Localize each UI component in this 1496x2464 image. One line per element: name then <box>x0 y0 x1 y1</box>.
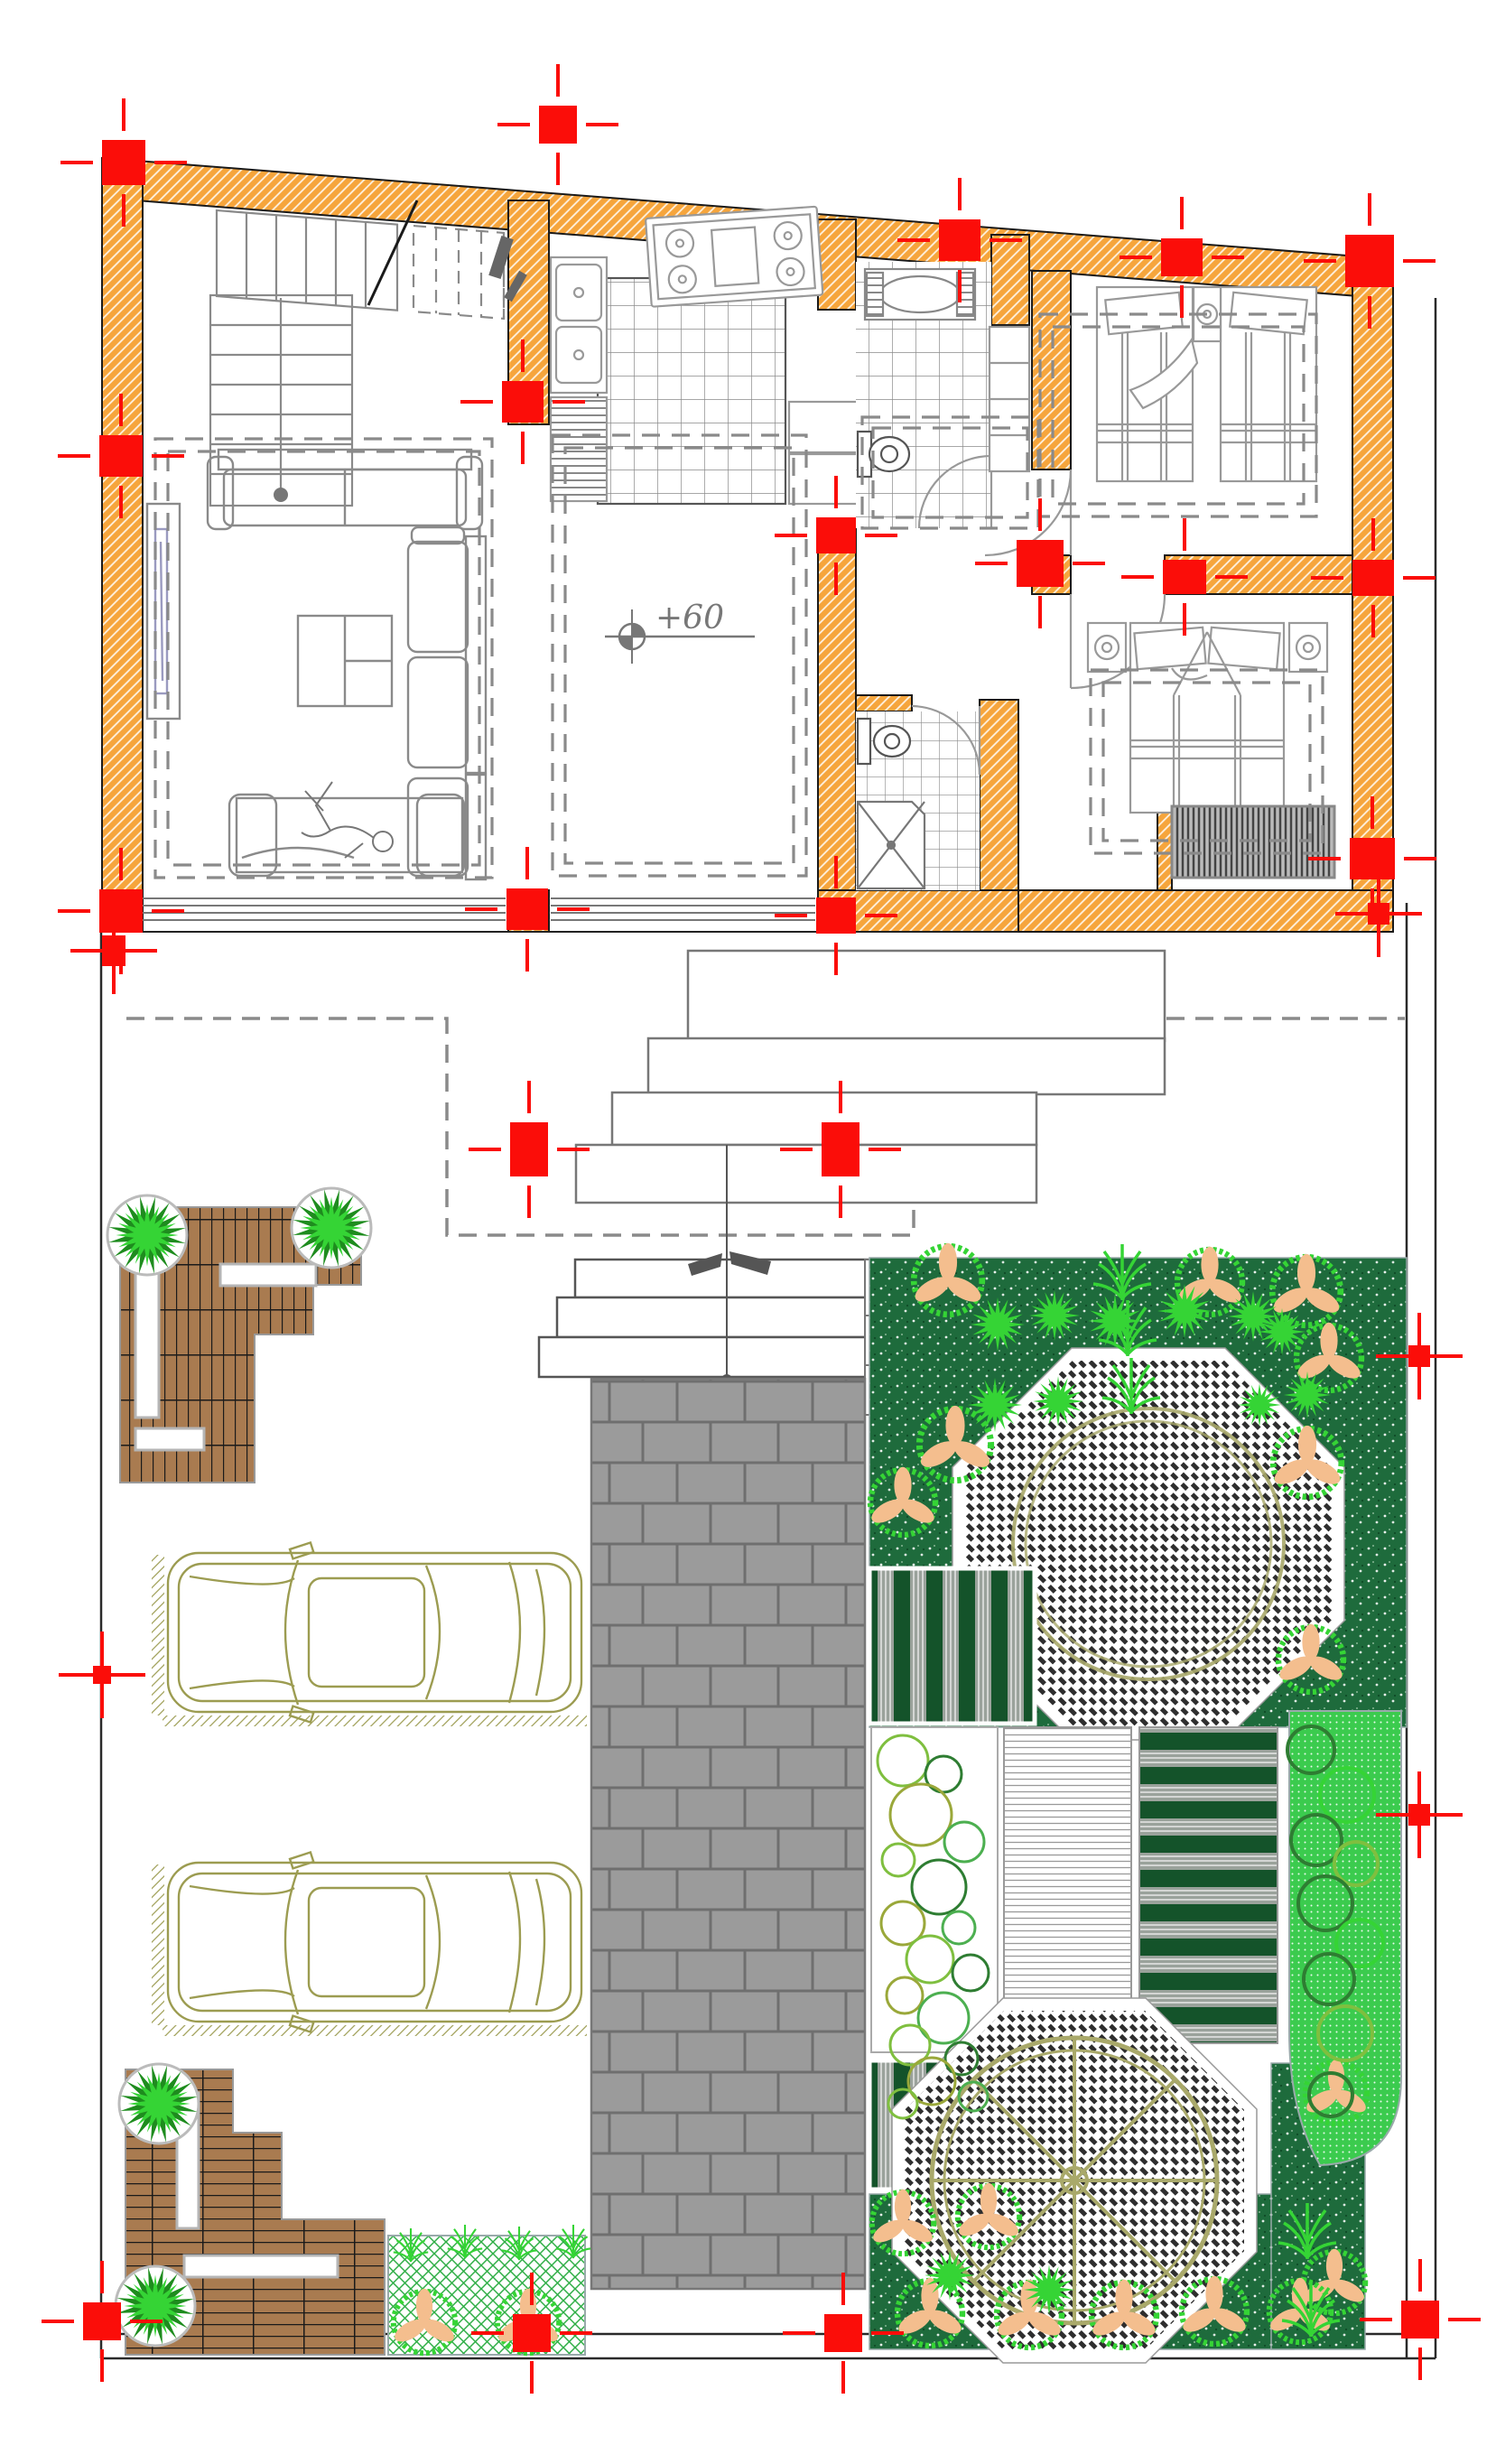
star-shrub-icon <box>1284 1371 1331 1418</box>
star-shrub-icon <box>925 2250 975 2301</box>
bedroom-2 <box>1071 594 1334 878</box>
structural-column <box>60 98 187 227</box>
structural-column <box>1304 193 1436 329</box>
cad-sheet: +60 <box>0 0 1496 2464</box>
entry-platform <box>576 951 1165 1203</box>
star-shrub-icon <box>1033 1376 1083 1427</box>
structural-column <box>1311 518 1436 637</box>
star-shrub-icon <box>971 1297 1025 1352</box>
living-room <box>147 450 486 879</box>
ac-stub-wall <box>1157 806 1172 890</box>
level-marker: +60 <box>605 600 755 664</box>
parking-area <box>152 1543 587 2036</box>
shower-right-wall <box>980 700 1018 905</box>
tv-unit <box>147 504 180 719</box>
striped-bed-a <box>869 1568 1035 1724</box>
structural-column <box>1360 2259 1481 2380</box>
grid-cross-marker <box>59 1632 145 1718</box>
zebra-bed <box>1139 1727 1278 2043</box>
shower-room <box>856 706 980 890</box>
bathroom-top <box>856 262 991 528</box>
coffee-table <box>298 616 392 706</box>
double-bed <box>1130 623 1284 813</box>
star-shrub-icon <box>1157 1284 1212 1338</box>
counter-tiles <box>598 278 785 504</box>
grid-cross-marker <box>1335 870 1422 957</box>
stove-icon <box>646 207 822 307</box>
bath-closet-wall <box>991 235 1029 325</box>
sink-icon <box>551 257 607 501</box>
site-plan-drawing: +60 <box>0 0 1496 2464</box>
shower-top-stub <box>856 695 912 711</box>
star-shrub-icon <box>1228 1291 1278 1342</box>
level-value: +60 <box>655 600 724 637</box>
sofa-sectional-right <box>408 527 486 879</box>
bottom-wall-right <box>1018 890 1393 932</box>
star-shrub-icon <box>968 1378 1022 1432</box>
star-shrub-icon <box>1238 1383 1281 1427</box>
person-figure <box>302 782 393 858</box>
sofa-top <box>208 450 482 529</box>
wheel-motif <box>932 2038 1217 2323</box>
nightstand <box>1289 623 1327 672</box>
structural-column <box>58 394 184 518</box>
structural-column <box>1121 518 1248 636</box>
structural-column <box>465 847 590 972</box>
paver-walkway <box>591 1379 865 2289</box>
car-top-view <box>152 1853 587 2036</box>
left-wall <box>102 158 143 932</box>
star-shrub-icon <box>1029 1290 1080 1341</box>
star-shrub-icon <box>1259 1308 1306 1355</box>
shower-icon <box>858 802 925 888</box>
structural-column <box>469 1081 590 1218</box>
shrub-circles-bed <box>871 1727 998 2052</box>
star-shrub-icon <box>1024 2264 1074 2315</box>
structural-column <box>497 64 618 185</box>
car-top-view <box>152 1543 587 1726</box>
nightstand <box>1088 623 1126 672</box>
bench-with-person <box>229 782 464 876</box>
